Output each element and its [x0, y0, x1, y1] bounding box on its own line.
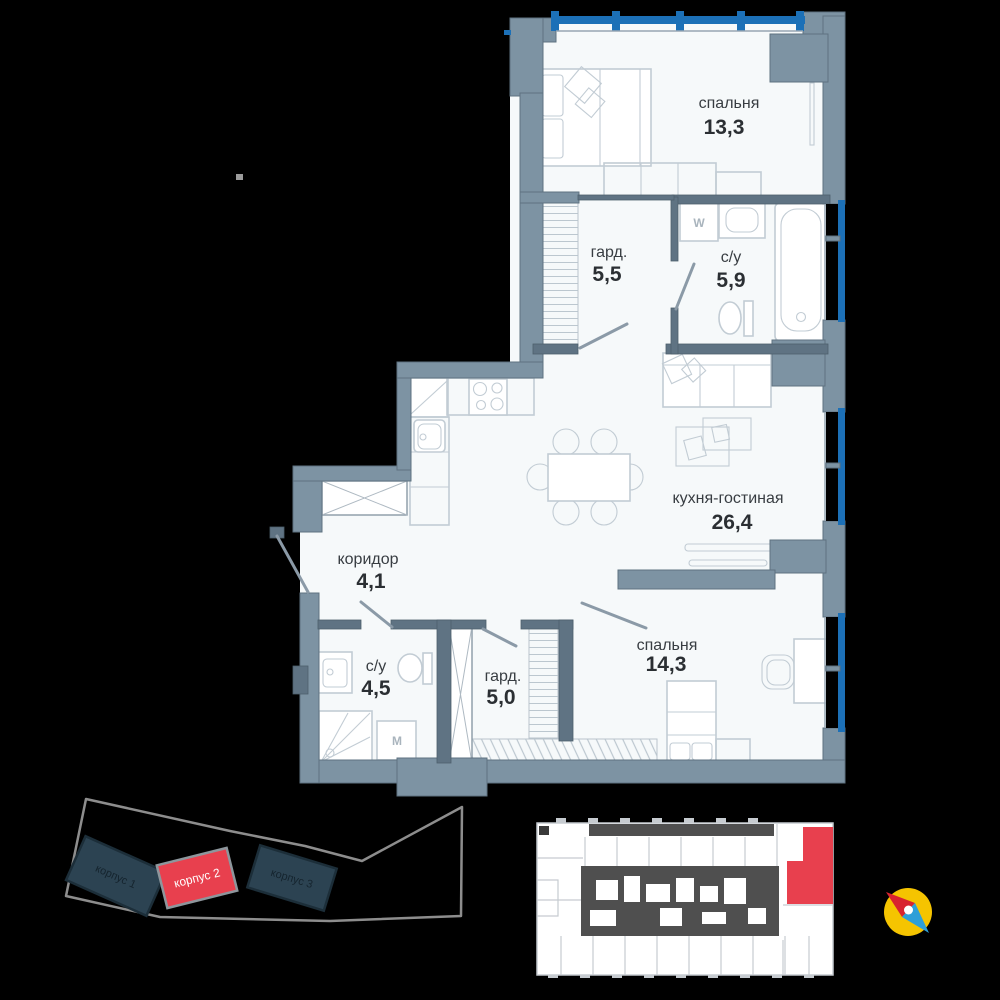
shaft-icon: [449, 626, 472, 763]
site-plan: корпус 1 корпус 2 корпус 3: [66, 799, 462, 921]
toilet-icon-bottom: [398, 653, 432, 684]
floorplan-canvas: W: [0, 0, 1000, 1000]
shower-icon: [319, 711, 372, 764]
room-name-bathroom-bottom: с/у: [366, 658, 386, 675]
closet-icon: [322, 481, 407, 515]
sofa-icon: [662, 353, 771, 407]
compass-icon: [884, 888, 932, 936]
washing-machine-letter: M: [392, 734, 402, 748]
building-korpus-1[interactable]: корпус 1: [66, 836, 166, 916]
bed-icon: [537, 67, 651, 166]
room-name-kitchen-living: кухня-гостиная: [672, 490, 783, 507]
stray-dot: [236, 174, 243, 180]
building-korpus-3[interactable]: корпус 3: [247, 845, 336, 910]
washer-letter: W: [693, 216, 705, 230]
room-name-corridor: коридор: [337, 551, 398, 568]
core-top-band: [589, 824, 774, 836]
sink-icon-top: [719, 202, 765, 238]
room-name-bathroom-top: с/у: [721, 249, 741, 266]
room-area-bathroom-bottom: 4,5: [361, 677, 391, 700]
floor-plate-map: [537, 818, 833, 978]
screenshot-root: W: [0, 0, 1000, 1000]
bathtub-icon: [775, 203, 827, 341]
room-area-corridor: 4,1: [356, 570, 386, 593]
washer-icon: W: [680, 202, 718, 241]
room-name-bedroom-bottom: спальня: [637, 637, 698, 654]
room-name-wardrobe-top: гард.: [591, 244, 628, 261]
room-area-wardrobe-bottom: 5,0: [486, 686, 515, 709]
room-area-kitchen-living: 26,4: [712, 511, 753, 534]
room-area-bedroom-top: 13,3: [704, 116, 745, 139]
room-area-wardrobe-top: 5,5: [592, 263, 622, 286]
washing-machine-icon: M: [377, 721, 416, 760]
room-name-bedroom-top: спальня: [699, 95, 760, 112]
building-korpus-2[interactable]: корпус 2: [157, 848, 238, 908]
toilet-icon-top: [719, 301, 753, 336]
room-area-bathroom-top: 5,9: [716, 269, 745, 292]
room-name-wardrobe-bottom: гард.: [485, 668, 522, 685]
room-area-bedroom-bottom: 14,3: [646, 653, 687, 676]
plate-corner-mark: [539, 826, 549, 835]
